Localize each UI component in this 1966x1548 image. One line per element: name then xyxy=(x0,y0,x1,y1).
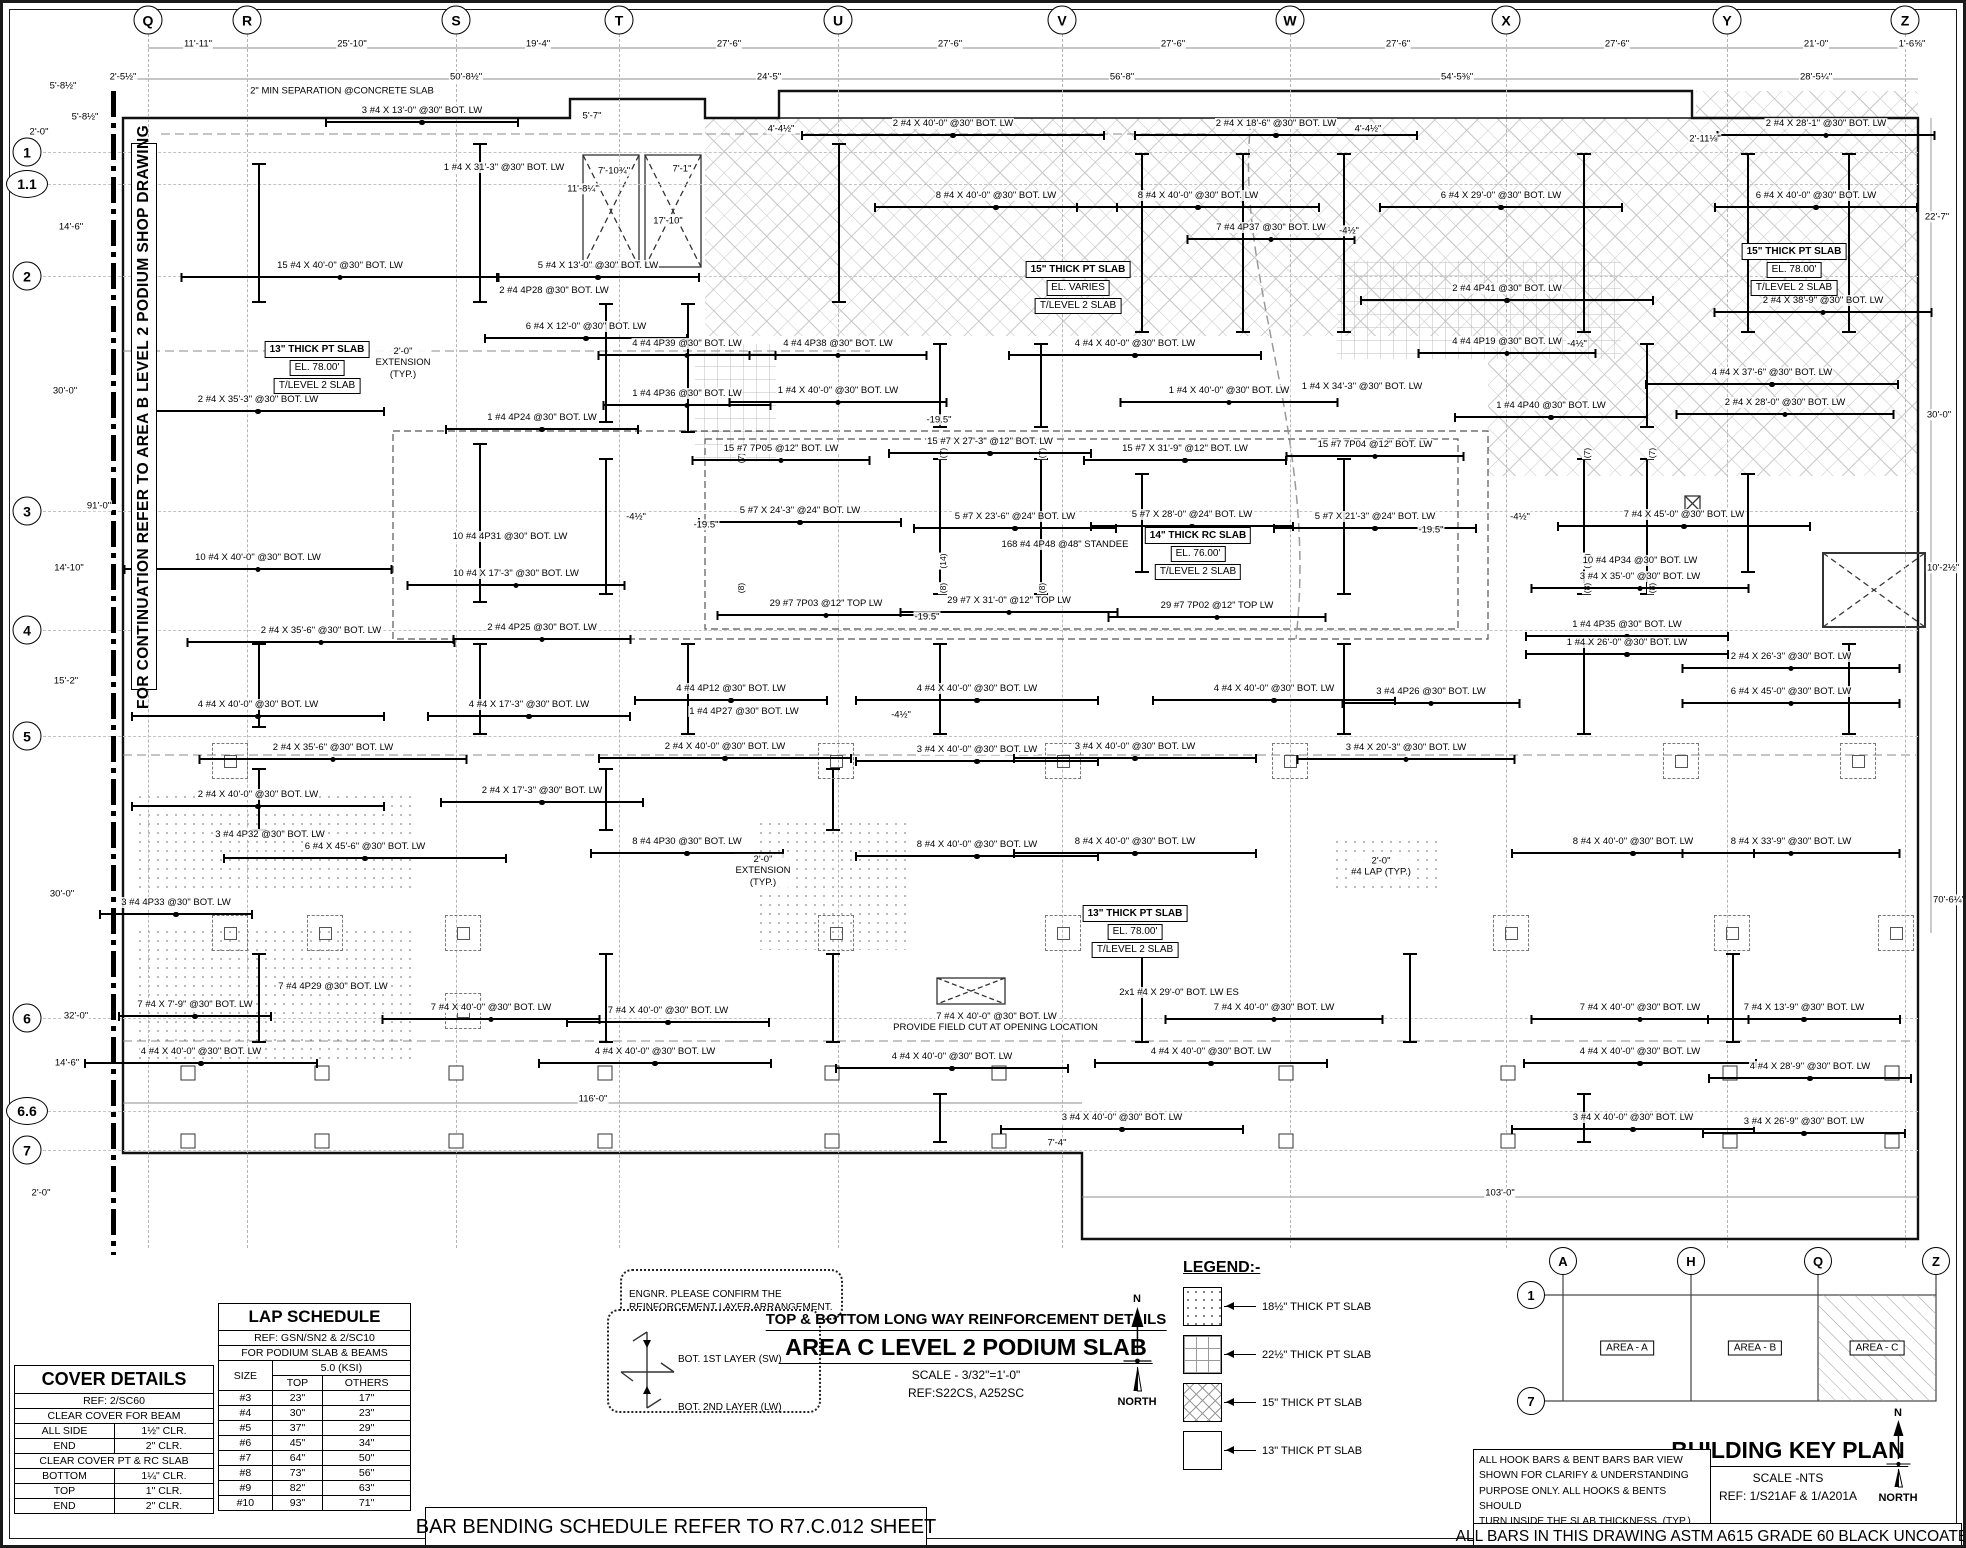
rebar-callout: 10 #4 4P31 @30" BOT. LW xyxy=(452,532,569,543)
slab-info-box: 15" THICK PT SLABEL. 78.00'T/LEVEL 2 SLA… xyxy=(1742,243,1847,296)
rebar-line xyxy=(1557,522,1811,531)
rebar-callout: 4 #4 X 17'-3" @30" BOT. LW xyxy=(427,700,631,721)
rebar-line xyxy=(1013,754,1257,763)
legend-item: 18½" THICK PT SLAB xyxy=(1183,1287,1443,1326)
rebar-line xyxy=(729,398,948,407)
dimension-label: 2'-0" xyxy=(29,126,50,137)
rebar-callout: 10 #4 X 17'-3" @30" BOT. LW xyxy=(407,569,626,590)
north-label: NORTH xyxy=(1117,1396,1156,1408)
rebar-line xyxy=(1676,410,1895,419)
rebar-line xyxy=(131,712,385,721)
dimension-label: 30'-0" xyxy=(49,888,75,899)
rebar-callout: 10 #4 X 40'-0" @30" BOT. LW xyxy=(124,553,393,574)
drawing-subtitle: TOP & BOTTOM LONG WAY REINFORCEMENT DETA… xyxy=(766,1311,1167,1331)
rebar-callout: 15 #7 7P04 @12" BOT. LW xyxy=(1286,440,1465,461)
slab-elevation-label: EL. 78.00' xyxy=(1108,924,1163,940)
slab-info-box: 15" THICK PT SLABEL. VARIEST/LEVEL 2 SLA… xyxy=(1026,261,1131,314)
drawing-sheet: FOR CONTINUATION REFER TO AREA B LEVEL 2… xyxy=(0,0,1966,1548)
legend-item-label: 15" THICK PT SLAB xyxy=(1262,1397,1362,1409)
rebar-callout: 7 #4 4P37 @30" BOT. LW xyxy=(1187,223,1356,244)
grid-bubble-4: 4 xyxy=(13,616,42,645)
rebar-callout: 3 #4 X 20'-3" @30" BOT. LW xyxy=(1297,743,1516,764)
rebar-line xyxy=(407,581,626,590)
rebar-callout: 15 #7 7P05 @12" BOT. LW xyxy=(692,444,871,465)
rebar-line xyxy=(1707,1015,1901,1024)
drawing-title: AREA C LEVEL 2 PODIUM SLAB xyxy=(779,1331,1153,1364)
keyplan-area-c: AREA - C xyxy=(1850,1341,1905,1356)
rebar-callout: 5 #7 X 23'-6" @24" BOT. LW xyxy=(913,512,1117,533)
north-arrow-icon xyxy=(1119,1305,1155,1393)
rebar-callout: 1 #4 4P40 @30" BOT. LW xyxy=(1454,401,1648,422)
rebar-callout: 3 #4 4P33 @30" BOT. LW xyxy=(99,898,253,919)
north-n-label: N xyxy=(1117,1293,1156,1305)
rebar-span-symbol xyxy=(1409,953,1411,1043)
rebar-callout: 7 #4 X 40'-0" @30" BOT. LW xyxy=(566,1006,770,1027)
rebar-callout: 4 #4 X 40'-0" @30" BOT. LW xyxy=(131,700,385,721)
bar-count-label: (7) xyxy=(1582,447,1592,459)
rebar-line xyxy=(1682,664,1901,673)
dimension-label: 2" MIN SEPARATION @CONCRETE SLAB xyxy=(249,85,435,96)
rebar-callout: 2 #4 X 40'-0" @30" BOT. LW xyxy=(598,742,852,763)
dimension-label: -19.5" xyxy=(925,414,952,425)
dimension-label: 24'-5" xyxy=(756,71,782,82)
cover-details-table: COVER DETAILSREF: 2/SC60CLEAR COVER FOR … xyxy=(14,1365,214,1514)
dimension-label: 7'-4" xyxy=(1047,1137,1068,1148)
column-symbol xyxy=(1501,1134,1516,1149)
rebar-callout: 3 #4 X 13'-0" @30" BOT. LW xyxy=(325,106,519,127)
column-symbol xyxy=(598,1134,613,1149)
rebar-line xyxy=(1682,699,1901,708)
rebar-line xyxy=(1120,398,1339,407)
rebar-line xyxy=(1013,849,1257,858)
rebar-line xyxy=(131,802,385,811)
slab-info-box: 13" THICK PT SLABEL. 78.00'T/LEVEL 2 SLA… xyxy=(1083,905,1188,958)
rebar-callout: 6 #4 X 40'-0" @30" BOT. LW xyxy=(1714,191,1918,212)
dimension-label: 54'-5⅜" xyxy=(1440,71,1474,82)
rebar-line xyxy=(325,118,519,127)
column-below-symbol xyxy=(445,915,481,951)
rebar-line xyxy=(187,638,456,647)
rebar-callout: 4 #4 X 40'-0" @30" BOT. LW xyxy=(835,1052,1069,1073)
bar-bending-note: BAR BENDING SCHEDULE REFER TO R7.C.012 S… xyxy=(425,1507,927,1547)
column-symbol xyxy=(181,1134,196,1149)
dimension-label: 27'-6" xyxy=(937,38,963,49)
rebar-callout: 4 #4 X 40'-0" @30" BOT. LW xyxy=(855,684,1099,705)
legend-item-label: 13" THICK PT SLAB xyxy=(1262,1445,1362,1457)
dimension-label: 2'-0" EXTENSION (TYP.) xyxy=(735,854,792,888)
dimension-label: -4½" xyxy=(890,709,912,720)
rebar-callout: 2 #4 4P25 @30" BOT. LW xyxy=(453,623,632,644)
rebar-callout: 8 #4 X 40'-0" @30" BOT. LW xyxy=(1076,191,1320,212)
dimension-label: 21'-0" xyxy=(1803,38,1829,49)
legend-item-label: 18½" THICK PT SLAB xyxy=(1262,1301,1371,1313)
slab-elevation-label: EL. 78.00' xyxy=(1767,262,1822,278)
dimension-label: 70'-6¼" xyxy=(1932,894,1966,905)
rebar-callout: 2 #4 X 40'-0" @30" BOT. LW xyxy=(131,790,385,811)
dimension-label: 17'-10" xyxy=(652,215,683,226)
dimension-label: 27'-6" xyxy=(716,38,742,49)
rebar-line xyxy=(1531,584,1750,593)
dimension-label: 2'-0" #4 LAP (TYP.) xyxy=(1350,856,1412,879)
rebar-callout: 29 #7 7P02 @12" TOP LW xyxy=(1108,601,1327,622)
layer-sketch-icon xyxy=(616,1328,678,1412)
legend-item: 15" THICK PT SLAB xyxy=(1183,1383,1443,1422)
dimension-label: 14'-6" xyxy=(54,1057,80,1068)
keyplan-grid-q: Q xyxy=(1804,1247,1832,1275)
dimension-label: 14'-6" xyxy=(58,221,84,232)
rebar-callout: 1 #4 X 40'-0" @30" BOT. LW xyxy=(729,386,948,407)
legend: LEGEND:- 18½" THICK PT SLAB22½" THICK PT… xyxy=(1183,1259,1443,1479)
rebar-line xyxy=(496,273,700,282)
rebar-callout: 2 #4 4P28 @30" BOT. LW xyxy=(498,286,609,297)
rebar-span-symbol xyxy=(479,643,481,735)
bar-count-label: (8) xyxy=(938,582,948,594)
rebar-span-symbol xyxy=(832,953,834,1043)
slab-thickness-label: 13" THICK PT SLAB xyxy=(265,341,370,358)
rebar-line xyxy=(1076,203,1320,212)
rebar-line xyxy=(1682,849,1901,858)
dimension-label: 50'-8½" xyxy=(449,71,483,82)
rebar-callout: 2 #4 X 40'-0" @30" BOT. LW xyxy=(801,119,1105,140)
keyplan-grid-7: 7 xyxy=(1517,1387,1545,1415)
rebar-line xyxy=(1108,613,1327,622)
grid-bubble-y: Y xyxy=(1713,6,1742,35)
dimension-label: -4½" xyxy=(1566,338,1588,349)
dimension-label: 25'-10" xyxy=(336,38,367,49)
legend-item: 22½" THICK PT SLAB xyxy=(1183,1335,1443,1374)
continuation-note-text: FOR CONTINUATION REFER TO AREA B LEVEL 2… xyxy=(135,124,153,708)
drawing-scale: SCALE - 3/32"=1'-0" xyxy=(766,1368,1167,1382)
slab-info-box: 14" THICK RC SLABEL. 76.00'T/LEVEL 2 SLA… xyxy=(1145,527,1251,580)
rebar-callout: 3 #4 X 26'-9" @30" BOT. LW xyxy=(1702,1117,1906,1138)
rebar-callout: 7 #4 4P29 @30" BOT. LW xyxy=(277,982,388,993)
rebar-line xyxy=(445,425,639,434)
column-below-symbol xyxy=(1878,915,1914,951)
dimension-label: 30'-0" xyxy=(52,385,78,396)
slab-elevation-label: EL. 76.00' xyxy=(1171,546,1226,562)
rebar-span-symbol xyxy=(1583,153,1585,333)
dimension-label: 30'-0" xyxy=(1926,409,1952,420)
dimension-label: 4'-4½" xyxy=(767,123,796,134)
rebar-callout: 2 #4 X 26'-3" @30" BOT. LW xyxy=(1682,652,1901,673)
slab-thickness-label: 13" THICK PT SLAB xyxy=(1083,905,1188,922)
rebar-callout: 3 #4 X 40'-0" @30" BOT. LW xyxy=(1013,742,1257,763)
continuation-note: FOR CONTINUATION REFER TO AREA B LEVEL 2… xyxy=(131,143,157,690)
column-below-symbol xyxy=(307,915,343,951)
rebar-span-symbol xyxy=(1732,953,1734,1043)
slab-info-box: 13" THICK PT SLABEL. 78.00'T/LEVEL 2 SLA… xyxy=(265,341,370,394)
dimension-label: 22'-7" xyxy=(1924,211,1950,222)
rebar-callout: 1 #4 4P24 @30" BOT. LW xyxy=(445,413,639,434)
rebar-span-symbol xyxy=(258,163,260,303)
dimension-label: 1'-6⅝" xyxy=(1898,38,1927,49)
hook-bars-note: ALL HOOK BARS & BENT BARS BAR VIEW SHOWN… xyxy=(1473,1449,1711,1533)
rebar-line xyxy=(1342,699,1521,708)
keyplan-grid-z: Z xyxy=(1922,1247,1950,1275)
rebar-callout: 10 #4 4P34 @30" BOT. LW xyxy=(1582,556,1699,567)
dimension-label: 5'-7" xyxy=(582,110,603,121)
rebar-line xyxy=(1714,308,1933,317)
rebar-line xyxy=(1645,380,1899,389)
dimension-label: 103'-0" xyxy=(1484,1187,1515,1198)
rebar-callout: 8 #4 X 40'-0" @30" BOT. LW xyxy=(1013,837,1257,858)
rebar-callout: 3 #4 4P26 @30" BOT. LW xyxy=(1342,687,1521,708)
grid-bubble-5: 5 xyxy=(13,722,42,751)
rebar-callout: 5 #7 X 21'-3" @24" BOT. LW xyxy=(1273,512,1477,533)
rebar-callout: 4 #4 4P12 @30" BOT. LW xyxy=(634,684,828,705)
dimension-label: 14'-10" xyxy=(53,562,84,573)
plain-hatch-swatch xyxy=(1183,1431,1222,1470)
column-symbol xyxy=(449,1134,464,1149)
rebar-line xyxy=(453,635,632,644)
rebar-callout: 7 #4 X 7'-9" @30" BOT. LW xyxy=(118,1000,272,1021)
rebar-line xyxy=(566,1018,770,1027)
rebar-line xyxy=(181,273,500,282)
rebar-line xyxy=(749,351,928,360)
dimension-label: 116'-0" xyxy=(578,1093,609,1104)
rebar-callout: 15 #7 X 27'-3" @12" BOT. LW xyxy=(888,437,1092,458)
rebar-line xyxy=(538,1059,772,1068)
rebar-span-symbol xyxy=(605,953,607,1043)
dimension-label: 28'-5¼" xyxy=(1799,71,1833,82)
rebar-line xyxy=(1273,524,1477,533)
north-n-label: N xyxy=(1878,1407,1917,1419)
dimension-label: 11'-11" xyxy=(183,38,213,49)
grid-line-5 xyxy=(43,736,1918,737)
grid-line-1.1 xyxy=(43,184,1918,185)
slab-thickness-label: 15" THICK PT SLAB xyxy=(1742,243,1847,260)
dimension-label: 2'-0" EXTENSION (TYP.) xyxy=(375,346,432,380)
slab-elevation-label: T/LEVEL 2 SLAB xyxy=(1035,298,1121,314)
column-symbol xyxy=(449,1066,464,1081)
slab-elevation-label: T/LEVEL 2 SLAB xyxy=(1155,564,1241,580)
dimension-label: -19.5" xyxy=(913,611,940,622)
rebar-callout: 7 #4 X 40'-0" @30" BOT. LW PROVIDE FIELD… xyxy=(893,1012,1099,1034)
rebar-callout: 2 #4 X 35'-3" @30" BOT. LW xyxy=(131,395,385,416)
grid-bubble-t: T xyxy=(605,6,634,35)
rebar-line xyxy=(131,407,385,416)
rebar-callout: 4 #4 4P38 @30" BOT. LW xyxy=(749,339,928,360)
dimension-label: 4'-4½" xyxy=(1354,123,1383,134)
dots-hatch-swatch xyxy=(1183,1287,1222,1326)
legend-title: LEGEND:- xyxy=(1183,1259,1443,1277)
rebar-line xyxy=(1360,296,1654,305)
rebar-line xyxy=(1094,1059,1328,1068)
grid-bubble-q: Q xyxy=(134,6,163,35)
lap-schedule-table: LAP SCHEDULEREF: GSN/SN2 & 2/SC10FOR POD… xyxy=(218,1303,411,1511)
slab-elevation-label: T/LEVEL 2 SLAB xyxy=(274,378,360,394)
grid-bubble-1.1: 1.1 xyxy=(6,170,48,198)
rebar-callout: 4 #4 X 40'-0" @30" BOT. LW xyxy=(84,1047,318,1068)
rebar-line xyxy=(692,456,871,465)
column-symbol xyxy=(1501,1066,1516,1081)
grid-bubble-2: 2 xyxy=(13,262,42,291)
grid-bubble-u: U xyxy=(824,6,853,35)
rebar-line xyxy=(1708,1074,1912,1083)
column-below-symbol xyxy=(1493,915,1529,951)
rebar-span-symbol xyxy=(939,1093,941,1143)
column-symbol xyxy=(315,1134,330,1149)
dimension-label: 5'-8½" xyxy=(49,80,78,91)
rebar-callout: 2 #4 X 28'-1" @30" BOT. LW xyxy=(1717,119,1936,140)
column-symbol xyxy=(1279,1134,1294,1149)
rebar-callout: 15 #4 X 40'-0" @30" BOT. LW xyxy=(181,261,500,282)
rebar-line xyxy=(1083,456,1287,465)
keyplan-area-b: AREA - B xyxy=(1728,1341,1782,1356)
rebar-line xyxy=(634,696,828,705)
rebar-callout: 3 #4 X 40'-0" @30" BOT. LW xyxy=(1000,1113,1244,1134)
grid-line-1 xyxy=(43,152,1918,153)
rebar-line xyxy=(124,565,393,574)
rebar-callout: 2 #4 X 17'-3" @30" BOT. LW xyxy=(440,786,644,807)
rebar-callout: 6 #4 X 45'-6" @30" BOT. LW xyxy=(223,842,507,863)
rebar-callout: 1 #4 X 34'-3" @30" BOT. LW xyxy=(1301,382,1423,393)
grid-bubble-v: V xyxy=(1048,6,1077,35)
legend-arrow-icon xyxy=(1224,1306,1256,1307)
column-below-symbol xyxy=(1663,743,1699,779)
rebar-callout: 7 #4 X 40'-0" @30" BOT. LW xyxy=(1165,1003,1384,1024)
rebar-line xyxy=(1286,452,1465,461)
rebar-callout: 3 #4 X 35'-0" @30" BOT. LW xyxy=(1531,572,1750,593)
dimension-label: -19.5" xyxy=(1417,524,1444,535)
rebar-callout: 5 #4 X 13'-0" @30" BOT. LW xyxy=(496,261,700,282)
match-line xyxy=(111,91,116,1255)
rebar-callout: 2 #4 X 28'-0" @30" BOT. LW xyxy=(1676,398,1895,419)
legend-arrow-icon xyxy=(1224,1354,1256,1355)
column-below-symbol xyxy=(1714,915,1750,951)
rebar-line xyxy=(913,524,1117,533)
rebar-line xyxy=(855,696,1099,705)
keyplan-grid-h: H xyxy=(1677,1247,1705,1275)
herr-hatch-swatch xyxy=(1183,1383,1222,1422)
bar-count-label: (7) xyxy=(1647,447,1657,459)
rebar-line xyxy=(1000,1125,1244,1134)
slab-elevation-label: T/LEVEL 2 SLAB xyxy=(1092,942,1178,958)
column-symbol xyxy=(825,1134,840,1149)
legend-item: 13" THICK PT SLAB xyxy=(1183,1431,1443,1470)
rebar-line xyxy=(440,798,644,807)
slab-elevation-label: EL. VARIES xyxy=(1046,280,1110,296)
dimension-label: 10'-2½" xyxy=(1926,562,1960,573)
dimension-label: 27'-6" xyxy=(1160,38,1186,49)
rebar-line xyxy=(1297,755,1516,764)
dimension-label: 2'-11⅛" xyxy=(1688,133,1721,144)
grid-bubble-s: S xyxy=(442,6,471,35)
rebar-line xyxy=(99,910,253,919)
dimension-label: -4½" xyxy=(625,511,647,522)
grid-bubble-3: 3 xyxy=(13,497,42,526)
rebar-callout: 3 #4 4P32 @30" BOT. LW xyxy=(214,830,325,841)
column-symbol xyxy=(992,1134,1007,1149)
dimension-label: 91'-0" xyxy=(86,500,112,511)
dimension-label: 56'-8" xyxy=(1109,71,1135,82)
rebar-line xyxy=(223,854,507,863)
rebar-span-symbol xyxy=(1141,153,1143,333)
rebar-line xyxy=(427,712,631,721)
bar-count-label: (8) xyxy=(1037,582,1047,594)
rebar-callout: 6 #4 X 29'-0" @30" BOT. LW xyxy=(1379,191,1623,212)
rebar-callout: 2 #4 4P41 @30" BOT. LW xyxy=(1360,284,1654,305)
rebar-callout: 4 #4 X 28'-9" @30" BOT. LW xyxy=(1708,1062,1912,1083)
keyplan-grid-1: 1 xyxy=(1517,1281,1545,1309)
rebar-line xyxy=(698,518,902,527)
grid-bubble-w: W xyxy=(1276,6,1305,35)
rebar-callout: 4 #4 X 40'-0" @30" BOT. LW xyxy=(1008,339,1262,360)
dimension-label: 7'-1" xyxy=(672,163,693,174)
rebar-line xyxy=(1008,351,1262,360)
grid-bubble-7: 7 xyxy=(13,1136,42,1165)
column-below-symbol xyxy=(212,915,248,951)
rebar-line xyxy=(835,1064,1069,1073)
dimension-label: 11'-8¼" xyxy=(566,183,599,194)
dimension-label: 2'-5½" xyxy=(109,71,138,82)
north-arrow: N NORTH xyxy=(1117,1293,1156,1408)
legend-item-label: 22½" THICK PT SLAB xyxy=(1262,1349,1371,1361)
rebar-callout: 5 #7 X 24'-3" @24" BOT. LW xyxy=(698,506,902,527)
north-label: NORTH xyxy=(1878,1492,1917,1504)
keyplan-north-arrow: N NORTH xyxy=(1878,1407,1917,1504)
column-below-symbol xyxy=(1840,743,1876,779)
rebar-line xyxy=(199,755,468,764)
rebar-line xyxy=(84,1059,318,1068)
dimension-label: -4½" xyxy=(1509,511,1531,522)
dimension-label: 19'-4" xyxy=(525,38,551,49)
astm-grade-note: ALL BARS IN THIS DRAWING ASTM A615 GRADE… xyxy=(1473,1523,1962,1548)
drawing-ref: REF:S22CS, A252SC xyxy=(766,1386,1167,1400)
dimension-label: 7'-10¾" xyxy=(597,165,631,176)
grid-bubble-x: X xyxy=(1492,6,1521,35)
rebar-callout: 1 #4 4P27 @30" BOT. LW xyxy=(688,707,799,718)
rebar-callout: 4 #4 X 40'-0" @30" BOT. LW xyxy=(538,1047,772,1068)
rebar-line xyxy=(1187,235,1356,244)
slab-thickness-label: 14" THICK RC SLAB xyxy=(1145,527,1251,544)
grid-bubble-z: Z xyxy=(1891,6,1920,35)
rebar-line xyxy=(1714,203,1918,212)
dimension-label: 2'-0" xyxy=(31,1187,52,1198)
rebar-callout: 6 #4 X 45'-0" @30" BOT. LW xyxy=(1682,687,1901,708)
keyplan-area-a: AREA - A xyxy=(1600,1341,1654,1356)
dimension-label: 5'-8½" xyxy=(71,111,100,122)
dimension-label: -19.5" xyxy=(692,519,719,530)
legend-arrow-icon xyxy=(1224,1450,1256,1451)
rebar-line xyxy=(1165,1015,1384,1024)
keyplan-grid-a: A xyxy=(1549,1247,1577,1275)
title-block: TOP & BOTTOM LONG WAY REINFORCEMENT DETA… xyxy=(766,1311,1167,1400)
rebar-line xyxy=(1717,131,1936,140)
rebar-line xyxy=(1379,203,1623,212)
rebar-span-symbol xyxy=(258,953,260,1043)
dimension-label: 32'-0" xyxy=(63,1010,89,1021)
rebar-line xyxy=(801,131,1105,140)
grid-bubble-r: R xyxy=(233,6,262,35)
dimension-label: 27'-6" xyxy=(1604,38,1630,49)
rebar-callout: 4 #4 X 40'-0" @30" BOT. LW xyxy=(1094,1047,1328,1068)
rebar-callout: 2 #4 X 35'-6" @30" BOT. LW xyxy=(199,743,468,764)
slab-elevation-label: EL. 78.00' xyxy=(290,360,345,376)
column-below-symbol xyxy=(818,915,854,951)
rebar-callout: 1 #4 X 31'-3" @30" BOT. LW xyxy=(443,163,565,174)
rebar-line xyxy=(1418,349,1597,358)
dimension-label: 27'-6" xyxy=(1385,38,1411,49)
slab-thickness-label: 15" THICK PT SLAB xyxy=(1026,261,1131,278)
rebar-callout: 4 #4 X 37'-6" @30" BOT. LW xyxy=(1645,368,1899,389)
rebar-line xyxy=(118,1012,272,1021)
rebar-callout: 15 #7 X 31'-9" @12" BOT. LW xyxy=(1083,444,1287,465)
rebar-callout: 2 #4 X 35'-6" @30" BOT. LW xyxy=(187,626,456,647)
rebar-span-symbol xyxy=(838,143,840,303)
bar-count-label: (8) xyxy=(736,582,746,594)
rebar-callout: 168 #4 4P48 @48" STANDEE xyxy=(1001,540,1130,551)
